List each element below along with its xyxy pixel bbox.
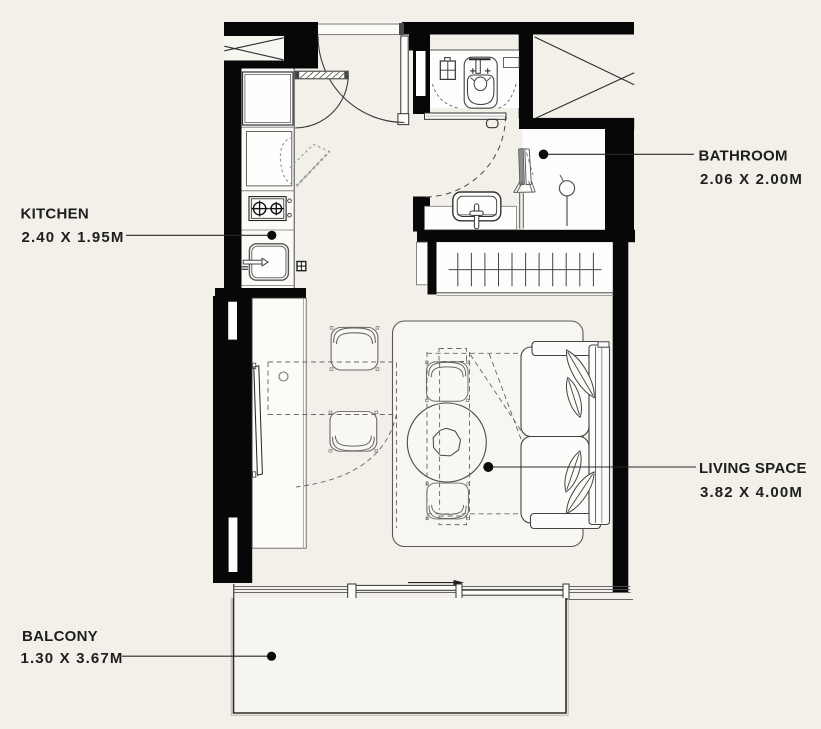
svg-text:BATHROOM: BATHROOM: [699, 147, 788, 164]
svg-text:2.40 X 1.95M: 2.40 X 1.95M: [22, 229, 125, 246]
svg-text:2.06 X 2.00M: 2.06 X 2.00M: [700, 171, 803, 188]
svg-text:BALCONY: BALCONY: [22, 628, 98, 645]
svg-text:KITCHEN: KITCHEN: [21, 206, 89, 223]
svg-text:1.30 X 3.67M: 1.30 X 3.67M: [21, 650, 124, 667]
svg-text:3.82 X 4.00M: 3.82 X 4.00M: [700, 484, 803, 501]
svg-text:LIVING SPACE: LIVING SPACE: [699, 460, 807, 477]
